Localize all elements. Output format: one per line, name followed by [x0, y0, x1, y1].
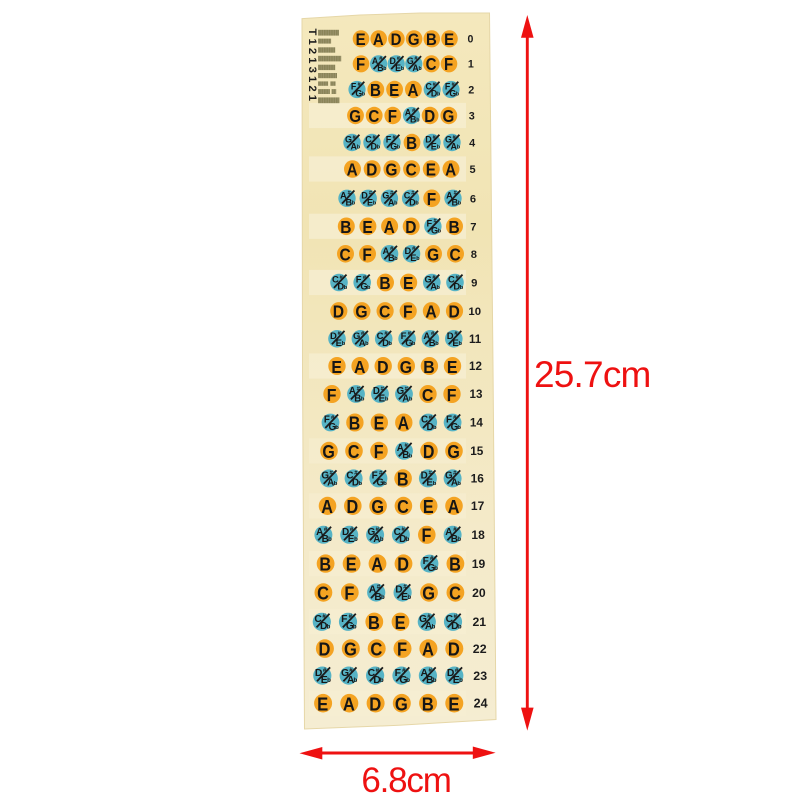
- svg-text:C: C: [368, 107, 379, 126]
- svg-text:B: B: [349, 413, 361, 433]
- svg-text:F: F: [374, 441, 384, 462]
- svg-text:F: F: [327, 385, 337, 405]
- svg-text:A: A: [425, 302, 436, 322]
- svg-text:G: G: [395, 693, 408, 714]
- svg-text:b: b: [412, 341, 416, 347]
- svg-text:B: B: [368, 612, 380, 633]
- svg-text:#: #: [414, 56, 417, 62]
- svg-text:4: 4: [469, 137, 475, 149]
- svg-text:B: B: [319, 554, 331, 575]
- svg-text:B: B: [426, 31, 437, 49]
- svg-text:A: A: [371, 554, 383, 575]
- svg-text:b: b: [380, 537, 384, 543]
- svg-text:b: b: [457, 425, 461, 431]
- svg-text:b: b: [388, 341, 392, 347]
- svg-text:B: B: [449, 217, 460, 237]
- svg-text:b: b: [381, 594, 385, 601]
- svg-text:C: C: [450, 245, 461, 265]
- svg-text:F: F: [403, 302, 413, 322]
- svg-text:D: D: [369, 693, 381, 714]
- svg-text:C: C: [397, 496, 409, 517]
- svg-text:23: 23: [473, 669, 487, 683]
- svg-text:A: A: [448, 496, 460, 517]
- svg-text:B: B: [406, 134, 417, 153]
- svg-text:D: D: [366, 161, 377, 180]
- svg-text:D: D: [448, 639, 460, 660]
- svg-text:b: b: [432, 623, 436, 630]
- svg-text:F: F: [427, 190, 436, 209]
- svg-text:B: B: [422, 693, 434, 714]
- svg-text:#: #: [454, 191, 457, 197]
- svg-text:b: b: [459, 677, 463, 684]
- svg-text:18: 18: [471, 528, 485, 542]
- svg-text:D: D: [397, 554, 409, 575]
- svg-text:5: 5: [470, 164, 476, 176]
- svg-text:#: #: [323, 667, 327, 674]
- svg-text:D: D: [333, 302, 344, 322]
- svg-text:16: 16: [471, 472, 485, 486]
- svg-text:C: C: [340, 245, 351, 265]
- svg-text:b: b: [460, 285, 464, 291]
- svg-text:#: #: [358, 82, 361, 88]
- svg-text:6: 6: [470, 193, 476, 205]
- svg-text:#: #: [433, 135, 436, 141]
- svg-text:E: E: [362, 217, 372, 237]
- svg-text:E: E: [448, 693, 459, 714]
- svg-text:b: b: [433, 677, 437, 684]
- svg-text:A: A: [321, 496, 333, 517]
- svg-text:1: 1: [468, 59, 474, 71]
- svg-text:G: G: [447, 441, 459, 462]
- svg-text:G: G: [443, 107, 455, 126]
- svg-text:b: b: [406, 537, 410, 543]
- svg-text:E: E: [444, 31, 454, 49]
- svg-text:#: #: [430, 555, 434, 562]
- svg-text:#: #: [452, 82, 455, 88]
- svg-text:10: 10: [468, 306, 481, 318]
- svg-text:C: C: [348, 441, 360, 462]
- svg-text:A: A: [354, 357, 365, 377]
- svg-text:#: #: [403, 584, 407, 591]
- svg-text:D: D: [347, 496, 359, 517]
- svg-text:b: b: [457, 537, 461, 543]
- svg-text:G: G: [355, 302, 367, 322]
- svg-text:G: G: [344, 639, 357, 660]
- svg-text:F: F: [444, 55, 453, 74]
- svg-text:0: 0: [468, 34, 474, 46]
- svg-text:b: b: [458, 623, 462, 630]
- svg-text:13: 13: [470, 388, 483, 401]
- svg-text:E: E: [426, 161, 436, 180]
- svg-text:20: 20: [472, 586, 486, 600]
- svg-text:b: b: [335, 425, 339, 431]
- svg-text:E: E: [447, 357, 458, 377]
- svg-text:7: 7: [470, 221, 476, 233]
- svg-text:B: B: [340, 217, 351, 237]
- svg-text:22: 22: [473, 642, 487, 656]
- svg-text:b: b: [365, 341, 369, 347]
- svg-text:E: E: [374, 413, 385, 433]
- svg-text:C: C: [379, 302, 390, 322]
- svg-text:A: A: [347, 161, 358, 180]
- svg-text:12: 12: [469, 360, 482, 373]
- svg-text:E: E: [389, 81, 399, 100]
- svg-text:24: 24: [474, 697, 488, 711]
- svg-text:#: #: [411, 191, 414, 197]
- svg-text:D: D: [391, 31, 402, 49]
- svg-text:#: #: [397, 56, 400, 62]
- svg-text:b: b: [354, 537, 358, 543]
- svg-text:G: G: [422, 583, 435, 604]
- svg-text:b: b: [328, 537, 332, 543]
- svg-text:b: b: [385, 396, 389, 402]
- svg-text:#: #: [353, 135, 356, 141]
- svg-text:b: b: [344, 285, 348, 291]
- svg-text:b: b: [434, 565, 438, 572]
- svg-text:#: #: [369, 191, 372, 197]
- svg-text:#: #: [412, 108, 415, 114]
- svg-text:G: G: [408, 31, 420, 49]
- svg-text:b: b: [383, 481, 387, 487]
- svg-text:11: 11: [469, 334, 482, 346]
- svg-text:A: A: [422, 639, 434, 660]
- svg-text:A: A: [398, 413, 410, 433]
- svg-text:G: G: [349, 107, 361, 126]
- svg-text:#: #: [349, 667, 353, 674]
- svg-text:b: b: [353, 623, 357, 630]
- svg-text:C: C: [406, 161, 417, 180]
- svg-text:b: b: [407, 594, 411, 601]
- svg-text:6.8cm: 6.8cm: [361, 761, 450, 800]
- svg-text:D: D: [424, 107, 435, 126]
- svg-text:E: E: [356, 31, 366, 49]
- svg-text:25.7cm: 25.7cm: [534, 354, 651, 395]
- svg-text:F: F: [344, 583, 354, 604]
- svg-text:2: 2: [468, 84, 474, 96]
- svg-text:G: G: [400, 357, 412, 377]
- svg-text:#: #: [376, 667, 380, 674]
- svg-text:F: F: [447, 385, 457, 405]
- svg-text:A: A: [373, 31, 384, 49]
- svg-text:D: D: [423, 441, 435, 462]
- svg-text:E: E: [395, 612, 406, 633]
- svg-text:C: C: [449, 583, 461, 604]
- svg-text:b: b: [327, 677, 331, 684]
- svg-text:A: A: [343, 693, 355, 714]
- svg-text:C: C: [317, 583, 329, 604]
- svg-text:#: #: [390, 191, 393, 197]
- svg-text:b: b: [367, 285, 371, 291]
- svg-text:#: #: [348, 191, 351, 197]
- svg-text:14: 14: [470, 417, 484, 430]
- svg-text:#: #: [433, 82, 436, 88]
- svg-text:b: b: [435, 341, 439, 347]
- svg-text:b: b: [433, 481, 437, 487]
- svg-text:3: 3: [469, 110, 475, 122]
- svg-text:E: E: [403, 273, 413, 293]
- svg-text:b: b: [416, 256, 420, 262]
- svg-text:A: A: [445, 161, 456, 180]
- svg-text:C: C: [370, 639, 382, 660]
- svg-text:B: B: [379, 273, 390, 293]
- svg-text:D: D: [377, 357, 388, 377]
- svg-text:T1213121: T1213121: [306, 29, 318, 105]
- svg-text:17: 17: [471, 499, 485, 513]
- svg-text:b: b: [457, 481, 461, 487]
- svg-text:b: b: [361, 396, 365, 402]
- svg-text:F: F: [388, 107, 397, 126]
- svg-text:b: b: [334, 481, 338, 487]
- svg-text:B: B: [397, 468, 409, 489]
- svg-text:E: E: [346, 554, 357, 575]
- svg-text:B: B: [423, 357, 434, 377]
- svg-text:#: #: [393, 135, 396, 141]
- svg-text:F: F: [356, 55, 365, 74]
- svg-text:#: #: [402, 667, 406, 674]
- svg-text:G: G: [371, 496, 384, 517]
- svg-text:#: #: [379, 56, 382, 62]
- svg-text:G: G: [427, 245, 439, 265]
- svg-text:b: b: [342, 341, 346, 347]
- svg-text:F: F: [421, 525, 431, 546]
- svg-text:F: F: [397, 639, 407, 660]
- svg-text:G: G: [322, 441, 334, 462]
- svg-text:b: b: [409, 453, 413, 459]
- svg-text:b: b: [438, 229, 442, 235]
- svg-text:b: b: [459, 341, 463, 347]
- svg-text:C: C: [422, 385, 433, 405]
- svg-text:8: 8: [471, 249, 477, 261]
- svg-text:b: b: [433, 425, 437, 431]
- svg-text:D: D: [319, 639, 331, 660]
- svg-text:#: #: [455, 667, 459, 674]
- svg-text:E: E: [317, 693, 328, 714]
- svg-text:D: D: [405, 217, 416, 237]
- svg-text:b: b: [354, 677, 358, 684]
- svg-text:F: F: [362, 245, 371, 265]
- svg-text:b: b: [406, 677, 410, 684]
- svg-text:b: b: [327, 623, 331, 630]
- svg-text:A: A: [408, 81, 419, 100]
- svg-text:b: b: [358, 481, 362, 487]
- svg-text:B: B: [370, 81, 381, 100]
- svg-text:C: C: [426, 55, 437, 74]
- svg-text:A: A: [384, 217, 395, 237]
- svg-text:b: b: [380, 677, 384, 684]
- svg-text:#: #: [373, 135, 376, 141]
- svg-text:E: E: [423, 496, 434, 517]
- svg-text:15: 15: [470, 444, 484, 458]
- svg-text:9: 9: [471, 278, 477, 290]
- svg-text:#: #: [453, 135, 456, 141]
- svg-text:G: G: [386, 161, 398, 180]
- svg-text:B: B: [449, 554, 461, 575]
- svg-text:19: 19: [472, 557, 486, 571]
- svg-text:E: E: [331, 357, 342, 377]
- svg-text:b: b: [394, 256, 398, 262]
- svg-text:21: 21: [472, 615, 486, 629]
- svg-text:D: D: [448, 302, 459, 322]
- svg-text:#: #: [428, 667, 432, 674]
- svg-text:b: b: [409, 396, 413, 402]
- svg-text:b: b: [437, 285, 441, 291]
